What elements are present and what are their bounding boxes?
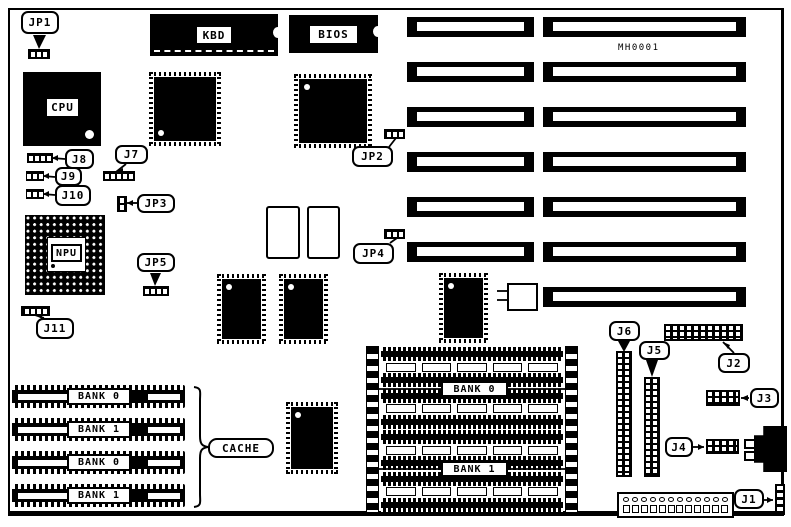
power-pin-round bbox=[641, 497, 647, 502]
jumper-j11 bbox=[21, 306, 50, 316]
empty-socket bbox=[457, 487, 487, 496]
power-pin-round bbox=[713, 497, 719, 502]
power-pin-round bbox=[632, 497, 638, 502]
label-jp4: JP4 bbox=[353, 243, 394, 264]
header-j4 bbox=[706, 439, 739, 454]
empty-socket bbox=[457, 446, 487, 455]
label-jp1: JP1 bbox=[21, 11, 59, 34]
label-j9: J9 bbox=[55, 167, 82, 186]
label-j3: J3 bbox=[750, 388, 779, 408]
simm-chip-bar bbox=[148, 460, 180, 466]
empty-socket-row bbox=[381, 446, 563, 455]
label-jp2: JP2 bbox=[352, 146, 393, 167]
empty-socket bbox=[493, 404, 523, 413]
simm-chip-bar bbox=[18, 460, 70, 466]
label-j6-text: J6 bbox=[617, 325, 632, 338]
label-jp3-text: JP3 bbox=[145, 197, 168, 210]
simm-chip-bar bbox=[18, 427, 70, 433]
label-j5: J5 bbox=[639, 341, 670, 360]
empty-socket bbox=[422, 363, 452, 372]
jumper-j10 bbox=[26, 189, 44, 199]
jumper-jp2 bbox=[384, 129, 405, 139]
jumper-pin bbox=[163, 289, 167, 294]
label-cache: CACHE bbox=[208, 438, 274, 458]
simm-chip-bar bbox=[148, 427, 180, 433]
jumper-pin bbox=[33, 192, 37, 197]
empty-socket bbox=[422, 446, 452, 455]
header-j6 bbox=[616, 351, 632, 477]
empty-socket bbox=[457, 363, 487, 372]
empty-socket bbox=[422, 404, 452, 413]
label-memory-bank1-text: BANK 1 bbox=[453, 464, 495, 475]
dram-socket-row bbox=[381, 415, 563, 429]
jumper-jp5 bbox=[143, 286, 169, 296]
label-jp3: JP3 bbox=[137, 194, 175, 213]
jumper-pin bbox=[387, 232, 391, 237]
simm-chip-bar bbox=[18, 493, 70, 499]
jumper-pin bbox=[29, 156, 33, 161]
jumper-pin bbox=[25, 309, 29, 314]
mini-connector-1 bbox=[744, 439, 756, 449]
power-pin-round bbox=[686, 497, 692, 502]
label-j8-text: J8 bbox=[72, 153, 87, 166]
label-kbd: KBD bbox=[197, 27, 231, 43]
label-j1-text: J1 bbox=[741, 493, 756, 506]
power-pin-round bbox=[695, 497, 701, 502]
power-pin-round bbox=[677, 497, 683, 502]
jumper-pin bbox=[31, 309, 35, 314]
power-pin-square bbox=[721, 505, 728, 513]
label-j5-text: J5 bbox=[647, 344, 662, 357]
jumper-pin bbox=[105, 174, 109, 179]
power-pin-round bbox=[668, 497, 674, 502]
jumper-pin bbox=[123, 174, 127, 179]
jumper-pin bbox=[151, 289, 155, 294]
qfp-chip-6-pin1-dot bbox=[295, 412, 301, 418]
empty-socket-row bbox=[381, 487, 563, 496]
label-j1: J1 bbox=[734, 489, 764, 509]
jumper-j9 bbox=[26, 171, 44, 181]
label-cache-text: CACHE bbox=[222, 442, 260, 455]
label-j2: J2 bbox=[718, 353, 750, 373]
dram-socket-row bbox=[381, 430, 563, 444]
jumper-pin bbox=[27, 192, 31, 197]
power-pin-square bbox=[676, 505, 683, 513]
dram-socket-row bbox=[381, 498, 563, 512]
power-pin-square bbox=[641, 505, 648, 513]
label-npu-text: NPU bbox=[56, 248, 77, 259]
mini-connector-2 bbox=[744, 451, 756, 461]
label-jp2-text: JP2 bbox=[361, 150, 384, 163]
jumper-pin bbox=[129, 174, 133, 179]
empty-socket bbox=[386, 363, 416, 372]
label-j4: J4 bbox=[665, 437, 693, 457]
power-pin-square bbox=[623, 505, 630, 513]
label-j7: J7 bbox=[115, 145, 148, 164]
label-jp4-text: JP4 bbox=[362, 247, 385, 260]
simm-bank-label: BANK 0 bbox=[67, 388, 131, 405]
header-j5 bbox=[644, 377, 660, 477]
power-connector bbox=[617, 492, 734, 518]
label-j2-text: J2 bbox=[726, 357, 741, 370]
header-j1 bbox=[775, 484, 785, 515]
empty-socket bbox=[386, 446, 416, 455]
empty-socket bbox=[386, 404, 416, 413]
empty-socket bbox=[528, 363, 558, 372]
power-pin-round bbox=[704, 497, 710, 502]
jumper-pin bbox=[39, 174, 43, 179]
jumper-pin bbox=[37, 52, 41, 57]
empty-socket bbox=[528, 446, 558, 455]
label-memory-bank1: BANK 1 bbox=[441, 461, 508, 477]
empty-socket bbox=[457, 404, 487, 413]
jumper-pin bbox=[41, 156, 45, 161]
jumper-pin bbox=[145, 289, 149, 294]
power-pin-row bbox=[623, 505, 728, 513]
label-j8: J8 bbox=[65, 149, 94, 169]
label-bios: BIOS bbox=[310, 26, 357, 43]
jumper-pin bbox=[120, 205, 124, 210]
power-pin-round bbox=[650, 497, 656, 502]
jumper-jp3 bbox=[117, 196, 127, 212]
simm-bank-label: BANK 0 bbox=[67, 454, 131, 471]
power-pin-row bbox=[623, 497, 728, 502]
empty-socket bbox=[386, 487, 416, 496]
qfp-chip-2-pin1-dot bbox=[304, 84, 310, 90]
label-j4-text: J4 bbox=[671, 441, 686, 454]
memory-array-right-bracket bbox=[565, 346, 578, 513]
empty-socket bbox=[422, 487, 452, 496]
label-j11-text: J11 bbox=[44, 322, 67, 335]
label-j10-text: J10 bbox=[62, 189, 85, 202]
power-pin-round bbox=[722, 497, 728, 502]
power-pin-square bbox=[668, 505, 675, 513]
dram-socket-row bbox=[381, 347, 563, 361]
simm-chip-bar bbox=[18, 394, 70, 400]
label-j9-text: J9 bbox=[61, 170, 76, 183]
jumper-j7 bbox=[103, 171, 135, 181]
jumper-pin bbox=[39, 192, 43, 197]
jumper-pin bbox=[27, 174, 31, 179]
power-pin-square bbox=[694, 505, 701, 513]
memory-array-rows bbox=[381, 347, 563, 512]
cpu-pin1-dot bbox=[85, 130, 94, 139]
memory-array-left-bracket bbox=[366, 346, 379, 513]
label-bios-text: BIOS bbox=[318, 28, 349, 41]
motherboard-diagram: JP1 KBD BIOS CPU J8 J9 J10 J7 JP3 NPU JP bbox=[0, 0, 791, 527]
label-j7-text: J7 bbox=[124, 148, 139, 161]
label-j11: J11 bbox=[36, 318, 74, 339]
label-jp5: JP5 bbox=[137, 253, 175, 272]
power-pin-square bbox=[712, 505, 719, 513]
power-pin-square bbox=[703, 505, 710, 513]
label-kbd-text: KBD bbox=[203, 29, 226, 42]
header-j3 bbox=[706, 390, 740, 406]
label-memory-bank0-text: BANK 0 bbox=[453, 384, 495, 395]
label-cpu-text: CPU bbox=[51, 101, 74, 114]
jumper-pin bbox=[120, 198, 124, 203]
qfp-chip-4-pin1-dot bbox=[288, 284, 294, 290]
qfp-chip-3-pin1-dot bbox=[226, 284, 232, 290]
jumper-pin bbox=[31, 52, 35, 57]
qfp-chip-1-pin1-dot bbox=[158, 130, 164, 136]
simm-chip-bar bbox=[148, 493, 180, 499]
header-j2 bbox=[664, 324, 743, 341]
empty-socket-row bbox=[381, 404, 563, 413]
simm-chip-bar bbox=[148, 394, 180, 400]
jumper-pin bbox=[37, 309, 41, 314]
jumper-pin bbox=[387, 132, 391, 137]
label-cpu: CPU bbox=[47, 99, 78, 116]
label-memory-bank0: BANK 0 bbox=[441, 381, 508, 397]
qfp-chip-5-pin1-dot bbox=[448, 283, 454, 289]
jumper-jp1 bbox=[28, 49, 50, 59]
jumper-pin bbox=[157, 289, 161, 294]
jumper-pin bbox=[43, 309, 47, 314]
jumper-pin bbox=[33, 174, 37, 179]
power-pin-round bbox=[623, 497, 629, 502]
jumper-j8 bbox=[27, 153, 53, 163]
power-pin-round bbox=[659, 497, 665, 502]
empty-socket bbox=[493, 446, 523, 455]
jumper-pin bbox=[393, 232, 397, 237]
label-jp1-text: JP1 bbox=[29, 16, 52, 29]
label-j10: J10 bbox=[55, 185, 91, 206]
empty-socket bbox=[493, 487, 523, 496]
jumper-pin bbox=[399, 132, 403, 137]
jumper-pin bbox=[43, 52, 47, 57]
jumper-pin bbox=[393, 132, 397, 137]
empty-socket bbox=[528, 404, 558, 413]
label-j3-text: J3 bbox=[757, 392, 772, 405]
simm-bank-label: BANK 1 bbox=[67, 421, 131, 438]
empty-socket bbox=[528, 487, 558, 496]
label-npu: NPU bbox=[51, 244, 82, 262]
jumper-jp4 bbox=[384, 229, 405, 239]
empty-socket-row bbox=[381, 363, 563, 372]
power-pin-square bbox=[650, 505, 657, 513]
jumper-pin bbox=[399, 232, 403, 237]
label-j6: J6 bbox=[609, 321, 640, 341]
power-pin-square bbox=[685, 505, 692, 513]
jumper-pin bbox=[35, 156, 39, 161]
jumper-pin bbox=[111, 174, 115, 179]
simm-bank-label: BANK 1 bbox=[67, 487, 131, 504]
power-pin-square bbox=[659, 505, 666, 513]
jumper-pin bbox=[117, 174, 121, 179]
empty-socket bbox=[493, 363, 523, 372]
power-pin-square bbox=[632, 505, 639, 513]
label-jp5-text: JP5 bbox=[145, 256, 168, 269]
jumper-pin bbox=[47, 156, 51, 161]
